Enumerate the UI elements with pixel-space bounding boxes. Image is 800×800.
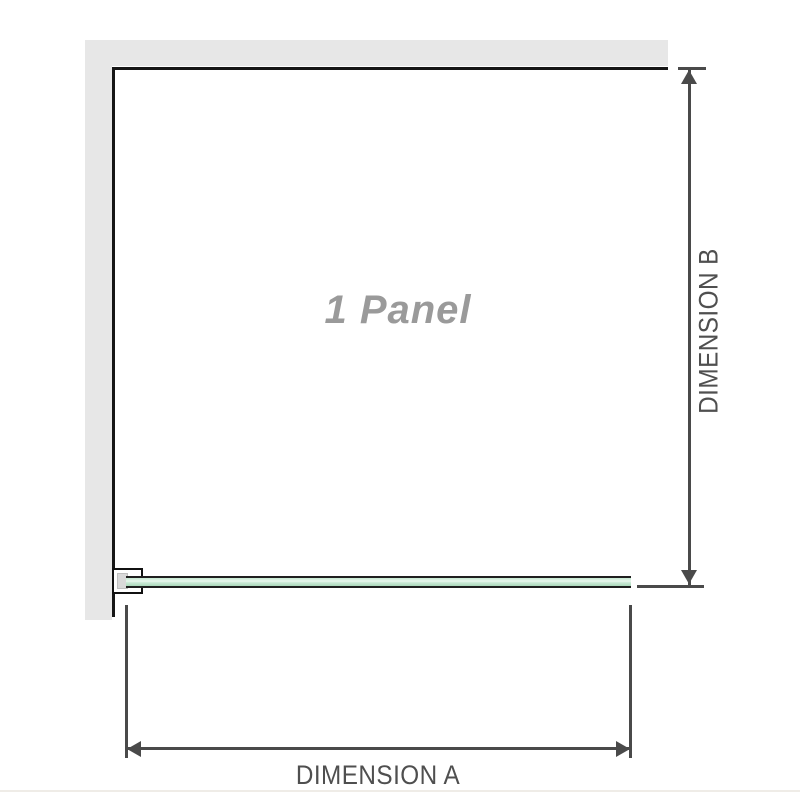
dimension-a-line bbox=[128, 747, 629, 750]
dimension-b-line bbox=[688, 70, 691, 586]
bottom-divider bbox=[0, 790, 800, 792]
wall-top bbox=[85, 40, 668, 66]
dimension-b-arrow-up-icon bbox=[681, 70, 697, 84]
dimension-a-arrow-right-icon bbox=[616, 741, 630, 757]
dimension-diagram: 1 Panel DIMENSION B DIMENSION A bbox=[0, 0, 800, 800]
dimension-a-extension-right bbox=[629, 605, 632, 758]
panel-count-label: 1 Panel bbox=[258, 288, 538, 333]
dimension-b-arrow-down-icon bbox=[681, 570, 697, 584]
screen-left-edge bbox=[112, 67, 115, 617]
dimension-a-arrow-left-icon bbox=[127, 741, 141, 757]
dimension-a-extension-left bbox=[125, 605, 128, 758]
wall-left bbox=[85, 40, 112, 620]
dimension-a-label: DIMENSION A bbox=[296, 760, 460, 791]
glass-panel-bar bbox=[126, 576, 631, 588]
dimension-b-bottom-tick bbox=[637, 585, 704, 588]
dimension-b-label: DIMENSION B bbox=[694, 248, 725, 414]
screen-top-edge bbox=[112, 67, 668, 70]
